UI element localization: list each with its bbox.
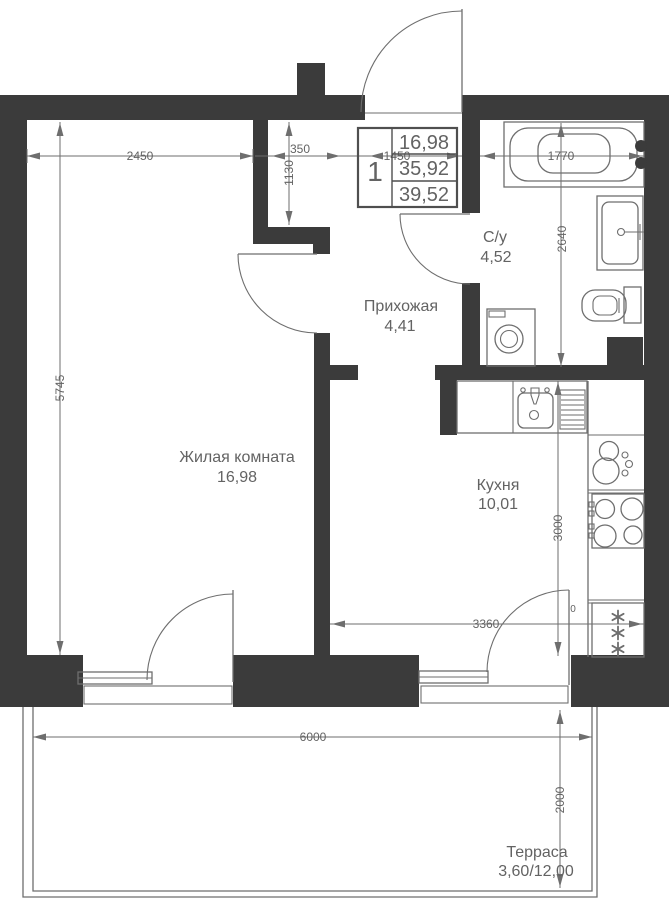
- hall-name: Прихожая: [364, 298, 438, 315]
- dimension-6000: 6000: [33, 730, 592, 744]
- terrace-area: 3,60/12,00: [498, 863, 574, 880]
- room-label-terrace: Терраса 3,60/12,00: [498, 844, 574, 880]
- dimension-2450: 2450: [27, 149, 253, 163]
- dish-drainer-icon: [560, 390, 585, 429]
- snowflake-icon: [612, 643, 623, 656]
- bathroom-door-arc: [400, 214, 470, 284]
- fridge-icon: [592, 603, 644, 657]
- kitchen-window-sill: [421, 686, 568, 703]
- entrance-door: [361, 9, 462, 112]
- wall-pilaster: [297, 63, 325, 95]
- terrace-name: Терраса: [506, 844, 567, 861]
- snowflake-icon: [612, 611, 623, 624]
- dim-label-3360: 3360: [473, 617, 500, 631]
- floor-plan: 2450 350 1450 1770 1130 5745: [0, 0, 669, 900]
- wall-niche-vertical: [253, 120, 268, 242]
- floor-plan-canvas: 2450 350 1450 1770 1130 5745: [0, 0, 669, 900]
- dim-label-350: 350: [290, 142, 310, 156]
- room-label-hall: Прихожая 4,41: [364, 298, 438, 335]
- wall-niche-horizontal: [253, 227, 330, 244]
- pots-icon: [593, 442, 633, 485]
- dim-label-1130: 1130: [282, 160, 296, 186]
- entrance-door-arc: [361, 11, 462, 112]
- dimension-5745: 5745: [53, 122, 67, 655]
- balcony-door: [147, 590, 233, 682]
- living-door-arc: [238, 254, 317, 333]
- kitchen-terrace-door: [487, 590, 569, 685]
- washbasin-icon: [597, 196, 644, 270]
- wall-partition-living: [314, 333, 330, 657]
- stamp-apartment-area: 35,92: [399, 158, 449, 180]
- room-label-living: Жилая комната 16,98: [179, 449, 295, 486]
- wall-top-right: [462, 95, 669, 120]
- toilet-icon: [582, 287, 641, 323]
- stove-icon: [589, 494, 644, 548]
- kitchen-name: Кухня: [477, 477, 520, 494]
- dimensions: 2450 350 1450 1770 1130 5745: [27, 122, 644, 888]
- balcony-door-arc: [147, 594, 233, 680]
- wall-bottom-middle: [233, 655, 419, 707]
- kitchen-terrace-door-arc: [487, 590, 569, 672]
- wall-kitchen-band: [435, 365, 644, 380]
- bathroom-name: С/у: [483, 229, 507, 246]
- wall-top-left: [0, 95, 365, 120]
- kitchen-sink-icon: [518, 388, 553, 428]
- dim-label-3000: 3000: [551, 514, 565, 541]
- dim-label-2450: 2450: [127, 149, 154, 163]
- wall-niche-block: [313, 244, 330, 254]
- wall-counter-pier: [440, 380, 457, 435]
- bathtub-icon: [504, 122, 647, 187]
- room-label-bathroom: С/у 4,52: [480, 229, 511, 266]
- living-window-sill: [84, 686, 232, 704]
- kitchen-area: 10,01: [478, 496, 518, 513]
- bathroom-door: [400, 214, 470, 284]
- wall-right: [644, 95, 669, 657]
- dim-label-2640: 2640: [555, 225, 569, 252]
- dim-label-6000: 6000: [300, 730, 327, 744]
- wall-hall-stub: [330, 365, 358, 380]
- hall-area: 4,41: [384, 318, 415, 335]
- wall-left: [0, 95, 27, 707]
- living-door: [238, 254, 317, 333]
- washing-machine-icon: [487, 309, 535, 366]
- dim-label-zero: 0: [570, 604, 576, 615]
- stamp-rooms-count: 1: [367, 156, 383, 187]
- bathroom-area: 4,52: [480, 249, 511, 266]
- stamp-living-area: 16,98: [399, 132, 449, 154]
- stamp-total-area: 39,52: [399, 184, 449, 206]
- room-label-kitchen: Кухня 10,01: [477, 477, 520, 513]
- wall-toilet-pier: [607, 337, 643, 366]
- snowflake-icon: [612, 627, 623, 640]
- dim-label-2000: 2000: [553, 786, 567, 813]
- dim-label-5745: 5745: [53, 374, 67, 401]
- living-room-name: Жилая комната: [179, 449, 295, 466]
- dimension-1130: 1130: [282, 122, 296, 225]
- dimension-3360: 3360: [330, 617, 644, 631]
- apartment-stamp: 1 16,98 35,92 39,52: [358, 128, 457, 207]
- wall-bottom-left: [0, 655, 83, 707]
- living-room-area: 16,98: [217, 469, 257, 486]
- wall-bottom-right: [571, 655, 669, 707]
- wall-bath-lower: [462, 283, 480, 367]
- wall-bath-upper: [462, 120, 480, 213]
